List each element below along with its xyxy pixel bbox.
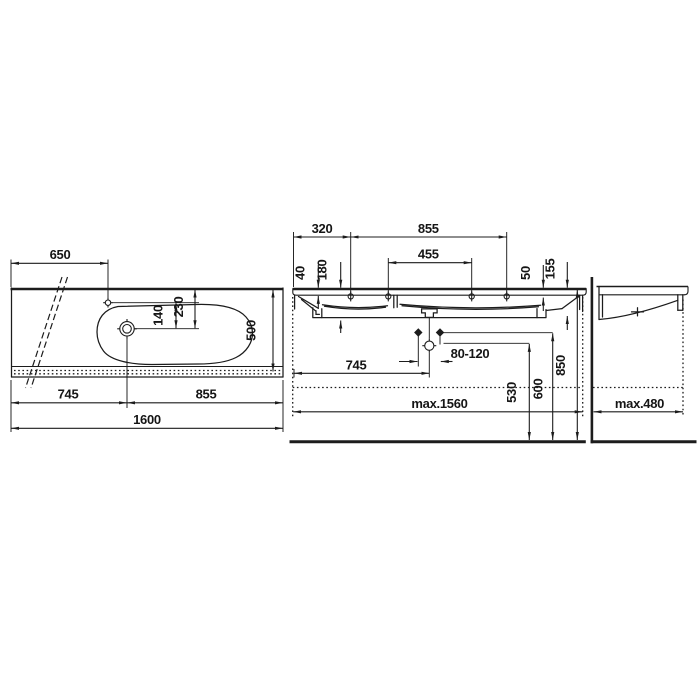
dim-label-500: 500	[244, 320, 259, 341]
dim-label-455: 455	[418, 247, 439, 262]
dim-label-max480: max.480	[615, 396, 664, 411]
dim-label-650: 650	[50, 247, 71, 262]
dim-label-745-plan: 745	[58, 387, 79, 402]
side-rim-nose	[684, 287, 688, 295]
front-under-profile	[295, 295, 583, 317]
dim-label-50: 50	[518, 266, 533, 280]
drain-symbol	[117, 319, 137, 339]
dim-label-855-plan: 855	[196, 387, 217, 402]
rim-fixing-holes	[348, 291, 509, 301]
technical-drawing-canvas: 650 140 230 500 745 855 1600	[0, 0, 700, 700]
front-view: 320 855 455 40 180 50 155	[290, 221, 587, 442]
dim-label-180: 180	[315, 260, 330, 281]
drain-outlet-symbol	[422, 339, 436, 353]
side-basin-profile	[599, 287, 683, 320]
plan-view: 650 140 230 500 745 855 1600	[11, 247, 284, 432]
drain-fitting	[422, 309, 438, 318]
dim-label-850: 850	[553, 355, 568, 376]
dim-label-745-front: 745	[346, 358, 367, 373]
dim-label-530: 530	[504, 382, 519, 403]
dim-label-230: 230	[171, 297, 186, 318]
dim-label-855-front: 855	[418, 221, 439, 236]
dim-label-80-120: 80-120	[451, 346, 490, 361]
dim-label-1600: 1600	[133, 412, 161, 427]
dim-label-155: 155	[542, 259, 557, 280]
dim-label-600: 600	[531, 379, 546, 400]
washbasin-technical-drawing: 650 140 230 500 745 855 1600	[0, 0, 700, 700]
side-view: max.480	[591, 277, 697, 443]
dim-label-140: 140	[151, 305, 166, 326]
dim-label-320: 320	[312, 221, 333, 236]
break-line-2	[26, 277, 63, 388]
dim-label-max1560: max.1560	[411, 396, 467, 411]
break-line-1	[31, 277, 68, 388]
dim-label-40: 40	[293, 266, 308, 280]
